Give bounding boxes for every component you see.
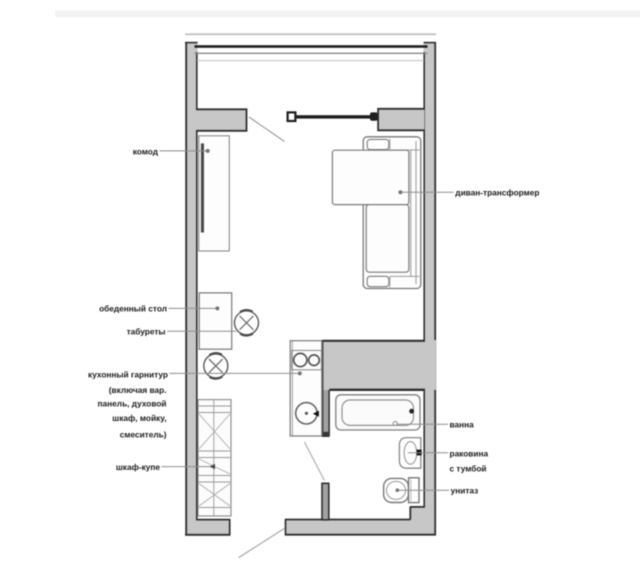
- svg-text:унитаз: унитаз: [451, 485, 479, 495]
- svg-text:шкаф-купе: шкаф-купе: [116, 462, 160, 472]
- svg-text:обеденный стол: обеденный стол: [99, 303, 167, 313]
- svg-text:комод: комод: [133, 146, 159, 156]
- svg-text:табуреты: табуреты: [127, 326, 166, 336]
- svg-text:шкаф, мойку,: шкаф, мойку,: [112, 413, 166, 423]
- svg-text:раковина: раковина: [450, 449, 489, 459]
- svg-text:(включая вар.: (включая вар.: [109, 385, 167, 395]
- svg-text:с тумбой: с тумбой: [450, 464, 487, 474]
- svg-text:смеситель): смеситель): [120, 430, 167, 440]
- svg-text:диван-трансформер: диван-трансформер: [455, 187, 539, 197]
- svg-text:кухонный гарнитур: кухонный гарнитур: [88, 369, 168, 379]
- svg-text:панель, духовой: панель, духовой: [98, 399, 167, 409]
- svg-text:ванна: ванна: [450, 420, 475, 430]
